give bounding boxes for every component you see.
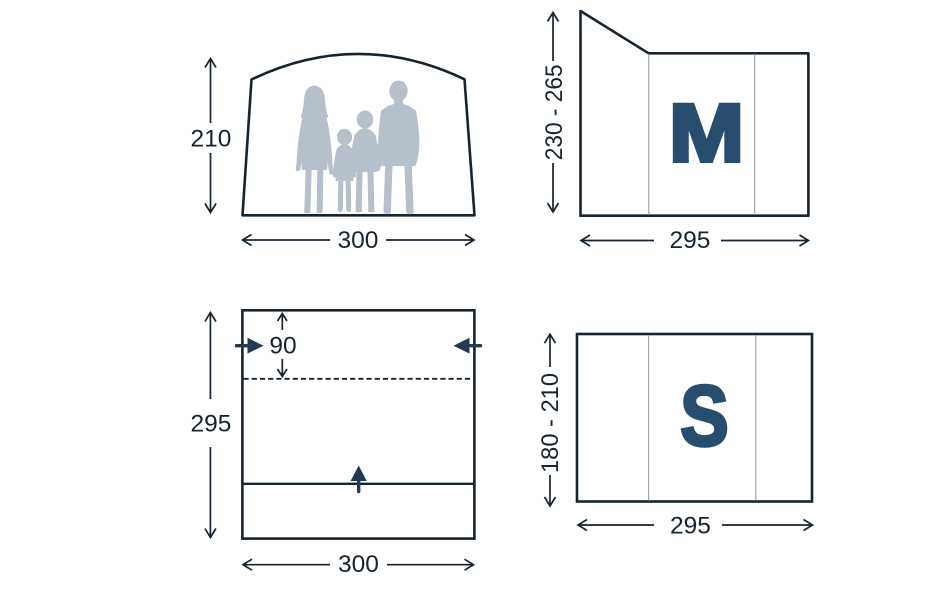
svg-text:295: 295 bbox=[670, 227, 711, 254]
svg-text:180 - 210: 180 - 210 bbox=[537, 373, 564, 473]
svg-text:300: 300 bbox=[338, 551, 379, 578]
svg-text:S: S bbox=[680, 367, 728, 463]
svg-text:210: 210 bbox=[191, 126, 232, 153]
svg-text:295: 295 bbox=[670, 513, 711, 540]
svg-text:90: 90 bbox=[269, 333, 296, 360]
svg-text:300: 300 bbox=[338, 227, 379, 254]
svg-text:M: M bbox=[669, 88, 744, 179]
svg-text:295: 295 bbox=[191, 411, 232, 438]
svg-text:230 - 265: 230 - 265 bbox=[541, 64, 568, 160]
